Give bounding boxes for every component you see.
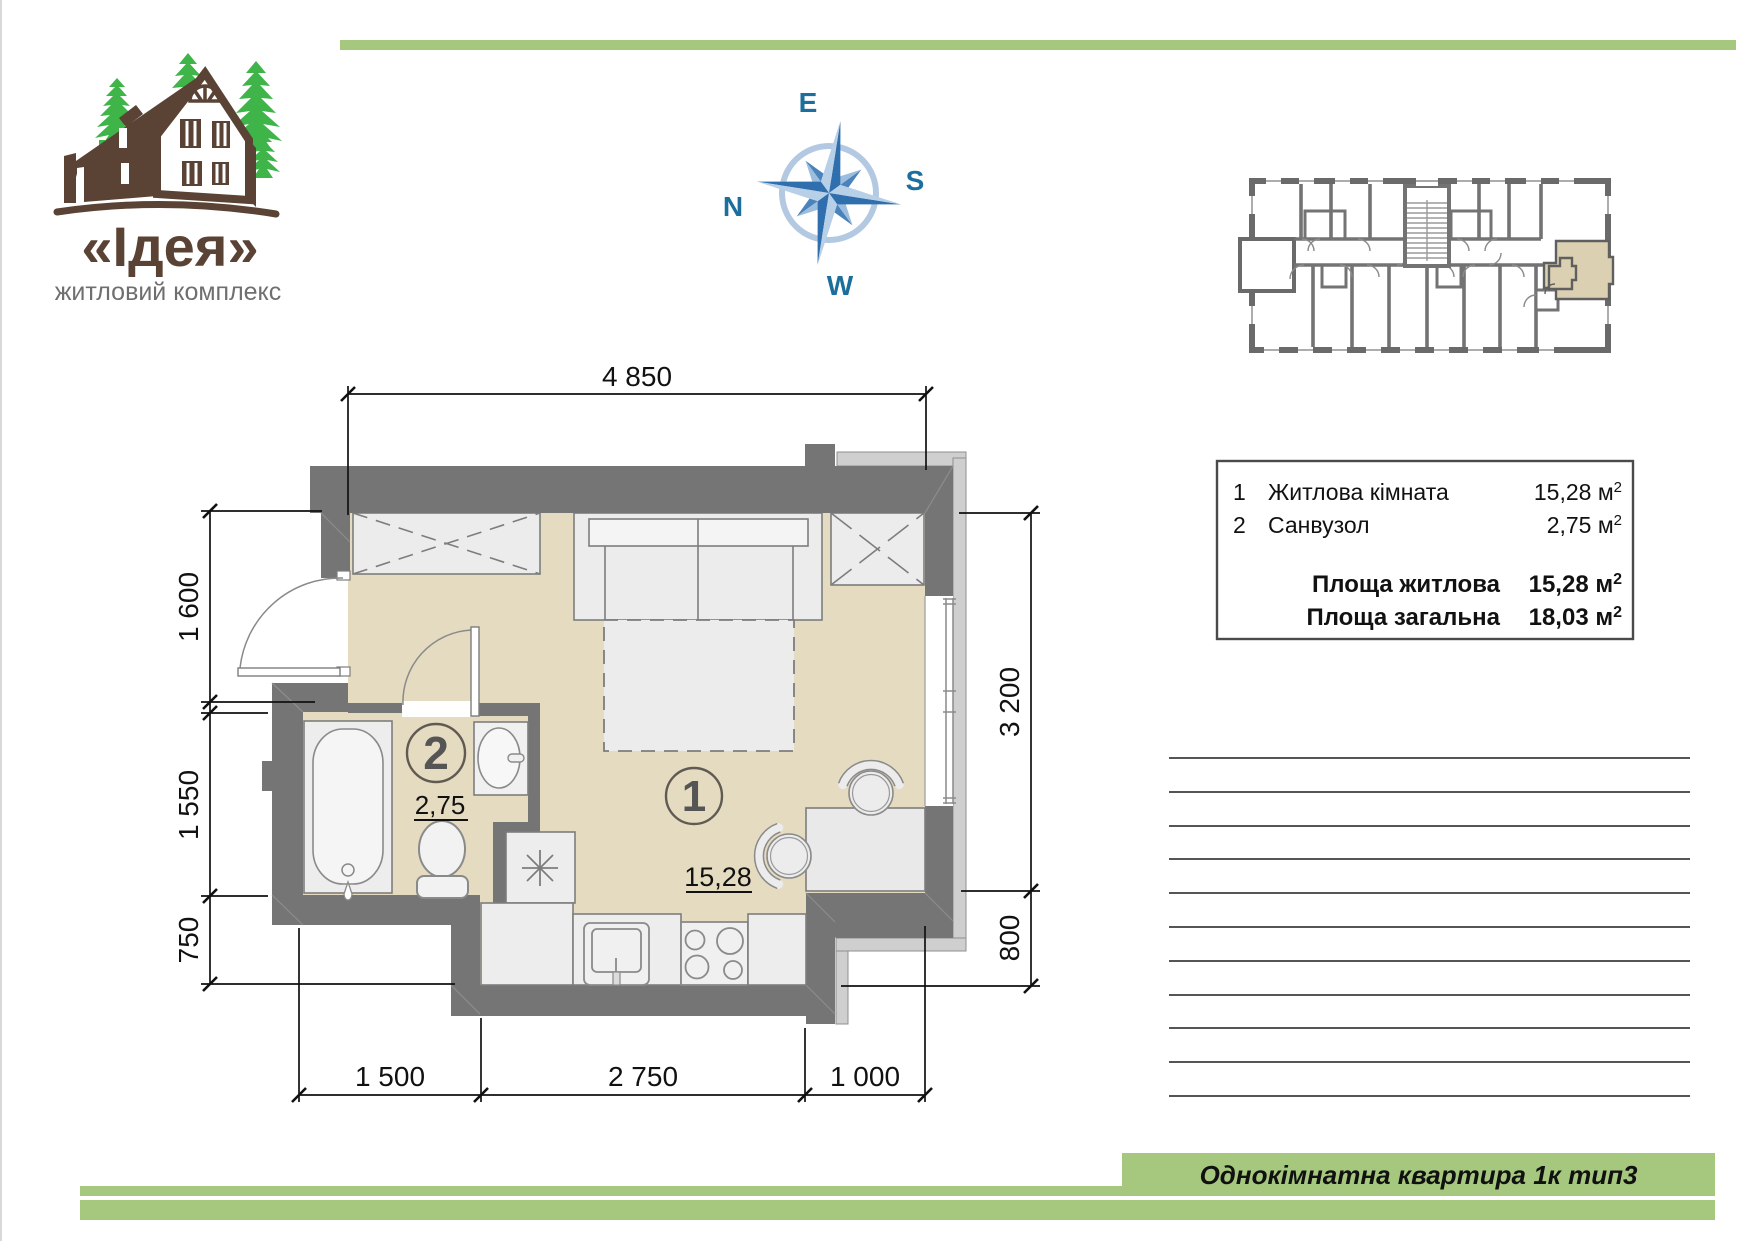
- svg-text:18,03 м2: 18,03 м2: [1529, 604, 1622, 631]
- svg-text:1 000: 1 000: [830, 1061, 900, 1092]
- svg-text:2,75: 2,75: [415, 790, 466, 820]
- svg-text:1: 1: [1233, 479, 1246, 505]
- svg-text:15,28 м2: 15,28 м2: [1529, 571, 1622, 598]
- svg-text:Санвузол: Санвузол: [1268, 512, 1370, 538]
- svg-text:2,75 м2: 2,75 м2: [1547, 512, 1622, 538]
- svg-text:E: E: [799, 87, 818, 118]
- svg-text:Площа житлова: Площа житлова: [1312, 571, 1501, 598]
- svg-text:Житлова кімната: Житлова кімната: [1268, 479, 1449, 505]
- svg-text:1 550: 1 550: [173, 770, 204, 840]
- svg-text:1: 1: [682, 772, 706, 821]
- svg-text:1 600: 1 600: [173, 572, 204, 642]
- svg-text:«Ідея»: «Ідея»: [81, 215, 258, 278]
- svg-text:2 750: 2 750: [608, 1061, 678, 1092]
- svg-text:W: W: [827, 270, 854, 301]
- svg-text:житловий комплекс: житловий комплекс: [55, 278, 282, 306]
- svg-text:1 500: 1 500: [355, 1061, 425, 1092]
- svg-text:N: N: [723, 191, 743, 222]
- svg-text:4 850: 4 850: [602, 361, 672, 392]
- svg-text:15,28: 15,28: [684, 862, 752, 892]
- svg-text:2: 2: [1233, 512, 1246, 538]
- svg-text:15,28 м2: 15,28 м2: [1534, 479, 1622, 505]
- svg-text:3 200: 3 200: [994, 667, 1025, 737]
- svg-text:800: 800: [994, 915, 1025, 962]
- svg-text:Площа загальна: Площа загальна: [1306, 604, 1500, 631]
- svg-text:S: S: [906, 165, 925, 196]
- svg-text:2: 2: [423, 727, 449, 779]
- svg-text:750: 750: [173, 917, 204, 964]
